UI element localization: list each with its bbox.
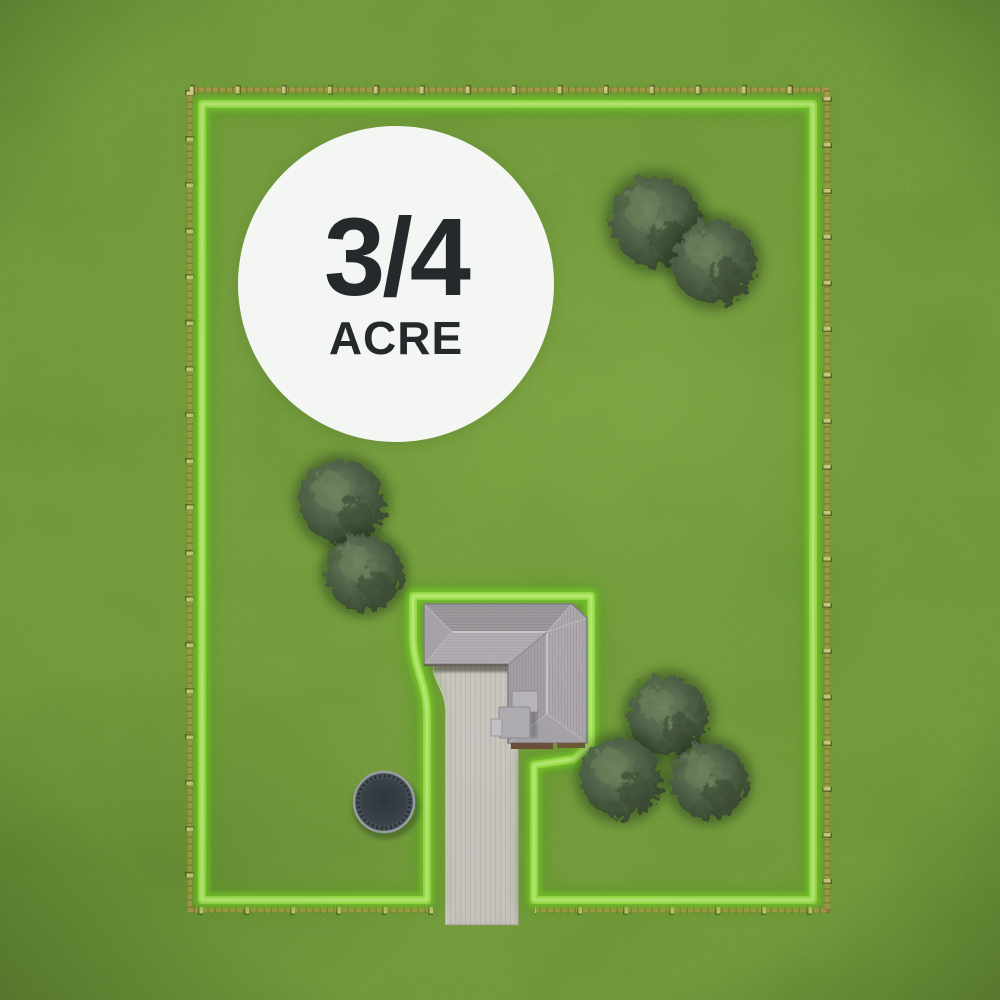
- acreage-badge: 3/4 ACRE: [238, 126, 554, 442]
- acreage-fraction: 3/4: [324, 207, 468, 308]
- acreage-visualization: 3/4 ACRE: [0, 0, 1000, 1000]
- vignette-overlay: [0, 0, 1000, 1000]
- acreage-unit: ACRE: [329, 315, 463, 361]
- lot-scene: [0, 0, 1000, 1000]
